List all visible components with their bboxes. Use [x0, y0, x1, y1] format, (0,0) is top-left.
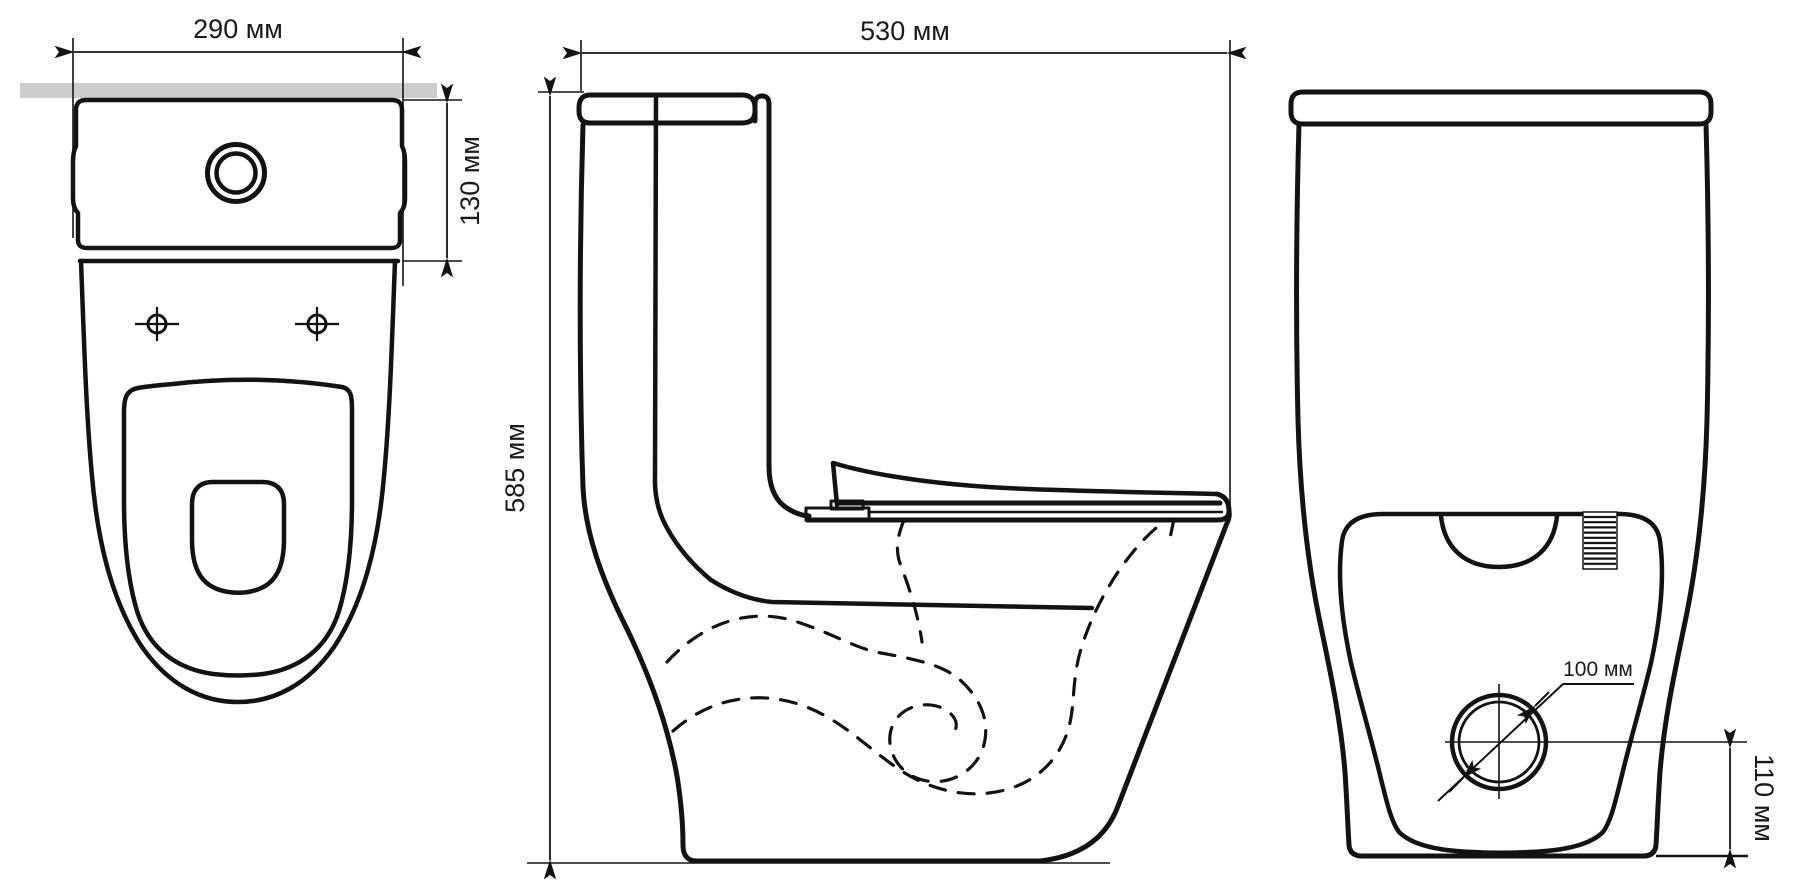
dimension-label-total-height: 585 мм — [500, 423, 530, 513]
dimension-label-tank-height: 130 мм — [455, 136, 485, 226]
inlet-body — [1583, 512, 1617, 569]
technical-drawing-canvas: 290 мм 130 м — [0, 0, 1800, 893]
panel-recess-arc — [1441, 516, 1557, 567]
wall-strip — [20, 83, 437, 98]
diameter-arrow-lower — [1449, 778, 1463, 792]
seat-bolt-right — [295, 307, 339, 341]
dimension-label-outlet-diameter: 100 мм — [1563, 658, 1633, 681]
bowl-inner-rim-line — [655, 95, 1092, 608]
dimension-label-total-depth: 530 мм — [860, 16, 950, 46]
tank-front-wall — [755, 96, 809, 516]
dimension-total-depth: 530 мм — [581, 16, 1230, 519]
dimension-total-height: 585 мм — [500, 92, 1110, 863]
front-view: 100 мм 110 мм — [1291, 92, 1779, 856]
water-inlet-thread — [1583, 512, 1617, 569]
seat-bolt-left — [135, 307, 179, 341]
weir-curve — [897, 520, 922, 642]
bowl-opening-outline — [192, 482, 284, 593]
dimension-top-width: 290 мм — [73, 14, 403, 286]
outlet: 100 мм — [1438, 658, 1747, 801]
seat-ring-outline — [124, 380, 352, 676]
front-edge-dash — [1169, 519, 1174, 543]
tank-lid-front — [1291, 92, 1711, 124]
flush-button — [208, 145, 265, 202]
dimension-label-top-width: 290 мм — [193, 14, 283, 44]
flush-button-inner-ring — [217, 154, 256, 193]
seat-lid-profile — [833, 463, 1217, 505]
tank-top-outline — [73, 100, 405, 248]
dimension-label-outlet-height: 110 мм — [1749, 754, 1779, 842]
top-view: 290 мм 130 м — [20, 14, 485, 702]
siphon-hidden-lines — [667, 519, 1174, 794]
tank-lid-side — [579, 95, 755, 123]
dimension-outlet-height: 110 мм — [1656, 748, 1779, 856]
body-silhouette — [1297, 124, 1709, 856]
dimension-tank-height: 130 мм — [403, 100, 485, 261]
side-view: 530 мм 585 мм — [500, 16, 1230, 863]
trap-upper-curve — [667, 616, 986, 782]
